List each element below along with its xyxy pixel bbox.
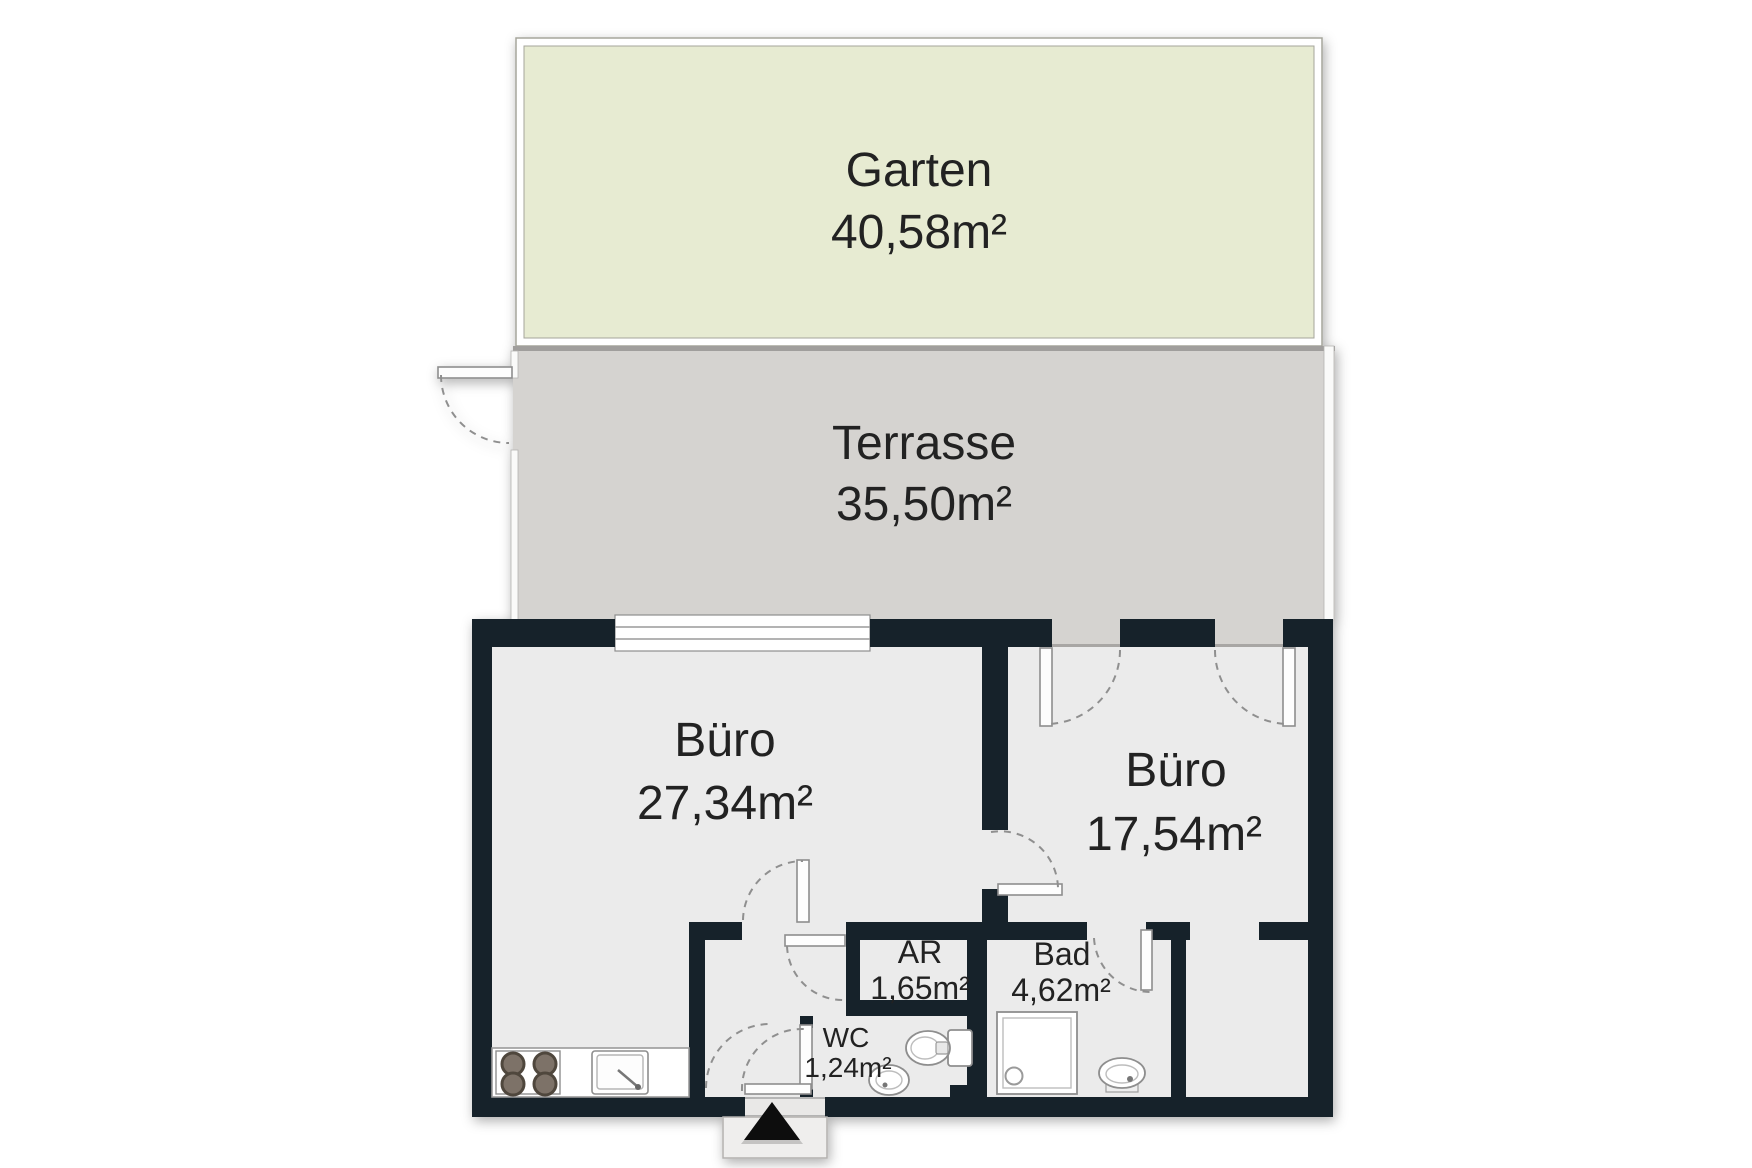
wc-name-label: WC (823, 1022, 870, 1053)
bad-name-label: Bad (1034, 936, 1091, 972)
stove-icon (496, 1051, 560, 1095)
window-icon (615, 615, 870, 651)
kitchen-sink-icon (592, 1051, 648, 1094)
floor-plan-page: Garten 40,58m² Terrasse 35,50m² Büro 27,… (0, 0, 1752, 1168)
buero-rechts-area-label: 17,54m² (1086, 808, 1262, 861)
buero-links-name-label: Büro (674, 714, 775, 767)
kitchen-counter (492, 1048, 689, 1097)
washbasin-icon (1099, 1058, 1145, 1092)
garten-name-label: Garten (846, 144, 993, 197)
buero-links-area-label: 27,34m² (637, 777, 813, 830)
wc-area-label: 1,24m² (804, 1052, 891, 1083)
ar-area-label: 1,65m² (870, 970, 970, 1006)
ar-name-label: AR (898, 934, 942, 970)
bad-area-label: 4,62m² (1011, 972, 1111, 1008)
terrasse-name-label: Terrasse (832, 417, 1016, 470)
garten-area-label: 40,58m² (831, 206, 1007, 259)
shower-icon (997, 1012, 1077, 1094)
terrace-gate-door (438, 367, 512, 443)
floor-plan: Garten 40,58m² Terrasse 35,50m² Büro 27,… (438, 38, 1335, 1158)
buero-rechts-name-label: Büro (1125, 744, 1226, 797)
floor-plan-svg: Garten 40,58m² Terrasse 35,50m² Büro 27,… (0, 0, 1752, 1168)
terrasse-area-label: 35,50m² (836, 478, 1012, 531)
toilet-icon (906, 1030, 972, 1066)
